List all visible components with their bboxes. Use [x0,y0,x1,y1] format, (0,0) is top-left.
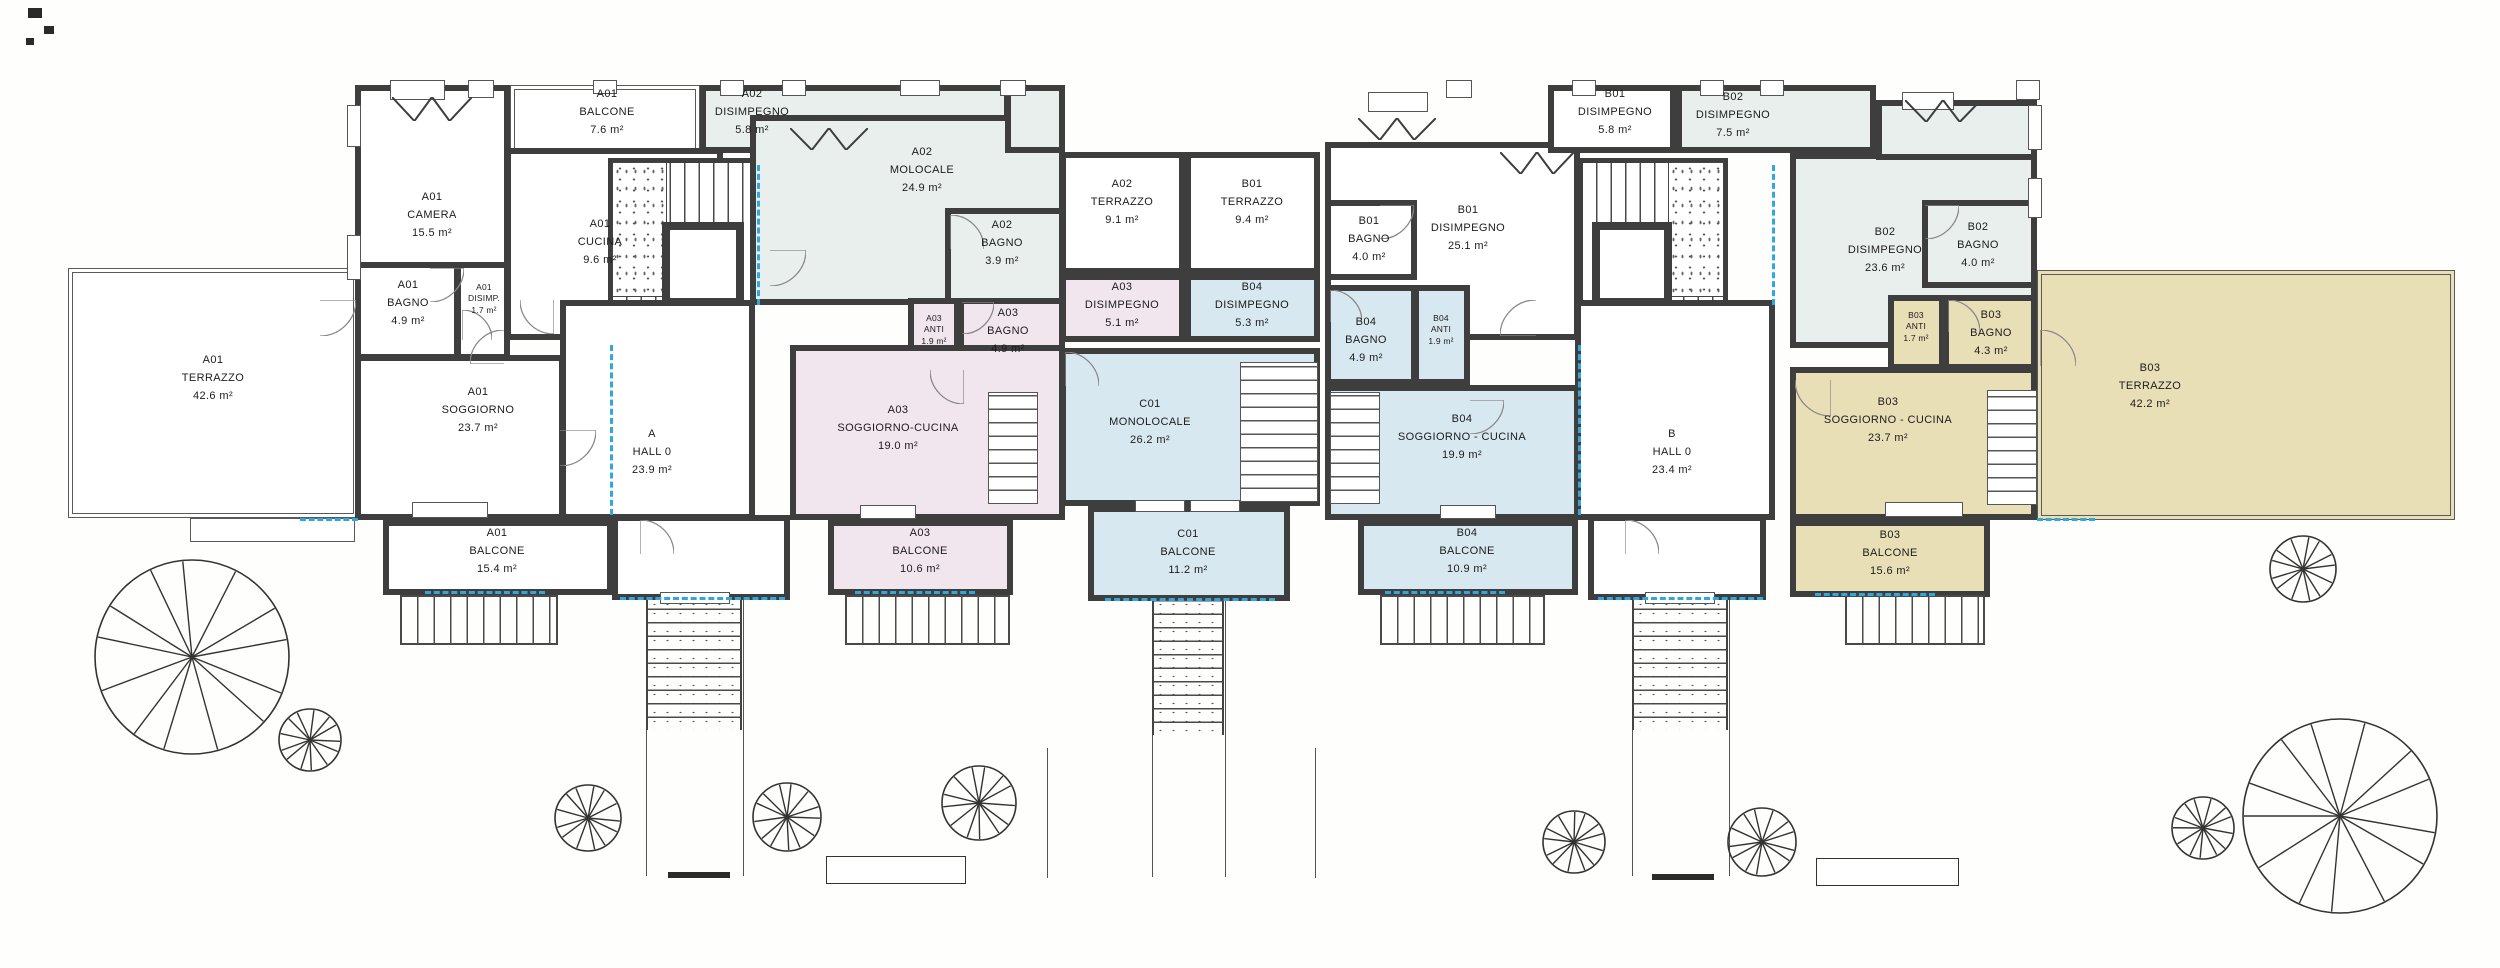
door-arc-icon [950,215,984,249]
room-name: SOGGIORNO [442,401,515,419]
door-arc-icon [1500,300,1536,336]
outdoor-stairs [646,600,742,730]
tree-icon [1542,810,1606,879]
room-name: CUCINA [578,233,623,251]
door-arc-icon [770,250,806,286]
window [412,502,488,518]
room-label: A01BALCONE7.6 m² [579,85,634,139]
room-code: A01 [578,215,623,233]
room-label: AHALL 023.9 m² [632,425,672,479]
room-label: A02DISIMPEGNO5.8 m² [715,85,789,139]
plan-patch [612,515,790,600]
room-name: BALCONE [1439,542,1494,560]
room-name: DISIMPEGNO [1848,241,1922,259]
window [347,105,361,147]
bay-window-icon [1358,118,1436,140]
room-area: 4.3 m² [1970,342,2012,360]
room-name: BALCONE [469,542,524,560]
tree-icon [941,765,1017,846]
room-area: 5.8 m² [1578,121,1652,139]
room-name: DISIMPEGNO [1085,296,1159,314]
room-code: B03 [1970,306,2012,324]
room-name: SOGGIORNO - CUCINA [1824,411,1952,429]
door-arc-icon [470,330,504,364]
room-name: DISIMPEGNO [1215,296,1289,314]
dashed-line [757,165,760,305]
room-label: A01SOGGIORNO23.7 m² [442,383,515,437]
room-label: B03BALCONE15.6 m² [1862,526,1917,580]
window [860,505,916,519]
room-code: A03 [892,524,947,542]
room-name: SOGGIORNO - CUCINA [1398,428,1526,446]
boundary-line [1047,748,1049,878]
room-code: B01 [1578,85,1652,103]
dashed-line [300,518,358,521]
room-name: BAGNO [1957,236,1999,254]
room-area: 42.6 m² [182,387,244,405]
tree-icon [278,708,342,777]
room-label: B01TERRAZZO9.4 m² [1221,175,1283,229]
interior-stairs [1987,390,2037,505]
dashed-line [1385,591,1505,594]
room-name: DISIMPEGNO [1696,106,1770,124]
room-name: BALCONE [579,103,634,121]
room-code: A03 [837,401,958,419]
room-code: A03 [1085,278,1159,296]
room-area: 24.9 m² [890,179,954,197]
room-area: 1.9 m² [1428,336,1453,347]
door-arc-icon [320,300,356,336]
planter [1816,858,1959,886]
room-area: 23.6 m² [1848,259,1922,277]
window [2016,80,2040,100]
room-area: 5.8 m² [715,121,789,139]
plan-patch [1588,515,1766,600]
room-b03-terrazzo [2037,270,2455,520]
room-label: B04BAGNO4.9 m² [1345,313,1387,367]
room-area: 25.1 m² [1431,237,1505,255]
door-arc-icon [640,520,674,554]
door-arc-icon [1925,205,1959,239]
room-label: B03SOGGIORNO - CUCINA23.7 m² [1824,393,1952,447]
room-code: A01 [387,276,429,294]
room-name: MONOLOCALE [1109,413,1191,431]
balcony-railing [400,595,558,645]
room-code: A01 [579,85,634,103]
interior-stairs [1330,392,1380,504]
room-area: 3.9 m² [981,252,1023,270]
door-arc-icon [1625,520,1659,554]
room-area: 11.2 m² [1160,561,1215,579]
room-code: B01 [1348,212,1390,230]
room-area: 1.7 m² [468,305,500,316]
dashed-line [425,591,545,594]
dashed-line [620,597,785,600]
dashed-line [2037,518,2095,521]
room-area: 15.4 m² [469,560,524,578]
outdoor-stairs [1152,600,1224,735]
room-code: A [632,425,672,443]
room-area: 5.1 m² [1085,314,1159,332]
room-label: B04ANTI1.9 m² [1428,313,1453,347]
window [2028,105,2042,150]
tree-icon [94,559,290,760]
room-area: 5.3 m² [1215,314,1289,332]
room-code: C01 [1109,395,1191,413]
room-label: B02BAGNO4.0 m² [1957,218,1999,272]
window [1885,502,1963,517]
dashed-line [1598,597,1763,600]
room-label: A03BAGNO4.9 m² [987,304,1029,358]
room-code: A03 [987,304,1029,322]
room-a-hall-0 [560,300,755,520]
room-area: 4.9 m² [387,312,429,330]
room-name: ANTI [1428,324,1453,335]
terrace-inner-border [2041,274,2451,516]
door-arc-icon [2040,330,2076,366]
room-name: BAGNO [981,234,1023,252]
room-name: BAGNO [987,322,1029,340]
dashed-line [1578,345,1581,515]
room-area: 19.0 m² [837,437,958,455]
window [1135,500,1185,512]
dashed-line [1772,165,1775,305]
tree-icon [752,782,822,857]
room-label: A03SOGGIORNO-CUCINA19.0 m² [837,401,958,455]
room-code: B02 [1957,218,1999,236]
interior-stairs [988,392,1038,504]
room-area: 4.9 m² [1345,349,1387,367]
dashed-line [1815,593,1935,596]
dashed-line [610,345,613,515]
room-code: A02 [981,216,1023,234]
room-label: B04BALCONE10.9 m² [1439,524,1494,578]
room-label: B04SOGGIORNO - CUCINA19.9 m² [1398,410,1526,464]
balcony-railing [1845,595,1985,645]
room-area: 23.4 m² [1652,461,1692,479]
boundary-line [1315,748,1317,878]
room-code: B [1652,425,1692,443]
room-label: A01TERRAZZO42.6 m² [182,351,244,405]
bay-window-icon [1905,100,1981,122]
plan-patch [190,518,355,542]
room-name: BALCONE [1862,544,1917,562]
room-area: 42.2 m² [2119,395,2181,413]
outdoor-stairs [1632,600,1728,730]
room-code: B02 [1696,88,1770,106]
room-code: B04 [1439,524,1494,542]
room-label: A01CUCINA9.6 m² [578,215,623,269]
tree-icon [2269,535,2337,608]
room-area: 1.9 m² [921,336,946,347]
room-code: B04 [1398,410,1526,428]
room-name: BAGNO [387,294,429,312]
room-label: C01BALCONE11.2 m² [1160,525,1215,579]
room-code: B04 [1345,313,1387,331]
bay-window-icon [790,128,868,150]
room-label: B01BAGNO4.0 m² [1348,212,1390,266]
room-area: 10.9 m² [1439,560,1494,578]
stair-landing-speckle [1668,162,1724,297]
room-name: HALL 0 [1652,443,1692,461]
room-code: B01 [1431,201,1505,219]
room-area: 4.9 m² [987,340,1029,358]
window [2028,178,2042,218]
room-name: TERRAZZO [1221,193,1283,211]
room-name: SOGGIORNO-CUCINA [837,419,958,437]
bay-window-icon [392,97,472,121]
balcony-railing [845,595,1010,645]
room-label: A02MOLOCALE24.9 m² [890,143,954,197]
room-code: A02 [890,143,954,161]
room-code: C01 [1160,525,1215,543]
room-label: B04DISIMPEGNO5.3 m² [1215,278,1289,332]
room-name: DISIMPEGNO [1578,103,1652,121]
room-name: DISIMPEGNO [1431,219,1505,237]
room-area: 23.9 m² [632,461,672,479]
room-name: BALCONE [1160,543,1215,561]
room-label: B03ANTI1.7 m² [1903,310,1928,344]
room-name: TERRAZZO [2119,377,2181,395]
room-area: 4.0 m² [1348,248,1390,266]
room-area: 9.1 m² [1091,211,1153,229]
room-label: B03BAGNO4.3 m² [1970,306,2012,360]
room-code: A01 [182,351,244,369]
room-name: ANTI [1903,321,1928,332]
room-label: C01MONOLOCALE26.2 m² [1109,395,1191,449]
room-name: BAGNO [1970,324,2012,342]
room-code: A02 [715,85,789,103]
room-label: A03ANTI1.9 m² [921,313,946,347]
room-label: A01DISIMP.1.7 m² [468,282,500,316]
room-area: 23.7 m² [442,419,515,437]
elevator-shaft [662,222,744,306]
room-label: A03BALCONE10.6 m² [892,524,947,578]
room-label: BHALL 023.4 m² [1652,425,1692,479]
scan-artifact [28,8,42,18]
bay-window-icon [1500,152,1574,174]
room-area: 23.7 m² [1824,429,1952,447]
room-label: A03DISIMPEGNO5.1 m² [1085,278,1159,332]
room-code: B03 [2119,359,2181,377]
room-code: B03 [1824,393,1952,411]
room-area: 9.6 m² [578,251,623,269]
room-code: A01 [407,188,456,206]
room-label: B01DISIMPEGNO5.8 m² [1578,85,1652,139]
room-label: A01BALCONE15.4 m² [469,524,524,578]
room-area: 7.6 m² [579,121,634,139]
room-name: BAGNO [1348,230,1390,248]
dashed-line [1105,598,1275,601]
room-code: A01 [468,282,500,293]
tree-icon [2171,796,2235,865]
room-code: B04 [1215,278,1289,296]
scan-artifact [26,38,34,45]
door-arc-icon [520,300,554,334]
dashed-line [855,591,975,594]
doormat [1652,874,1714,880]
room-code: B04 [1428,313,1453,324]
tree-icon [554,784,622,857]
doormat [668,872,730,878]
room-code: A02 [1091,175,1153,193]
room-name: BALCONE [892,542,947,560]
room-b-hall-0 [1575,300,1775,520]
window [1368,92,1428,112]
door-arc-icon [930,370,964,404]
window [468,80,494,98]
room-area: 9.4 m² [1221,211,1283,229]
window [1190,500,1240,512]
scan-artifact [44,26,54,34]
room-area: 7.5 m² [1696,124,1770,142]
room-area: 26.2 m² [1109,431,1191,449]
door-arc-icon [430,268,464,302]
room-name: DISIMP. [468,293,500,304]
room-area: 10.6 m² [892,560,947,578]
door-arc-icon [560,430,596,466]
room-code: B03 [1903,310,1928,321]
elevator-shaft [1592,222,1672,306]
room-code: A01 [442,383,515,401]
room-label: A02TERRAZZO9.1 m² [1091,175,1153,229]
room-code: B02 [1848,223,1922,241]
window [1446,80,1472,98]
room-area: 4.0 m² [1957,254,1999,272]
room-code: B03 [1862,526,1917,544]
room-name: ANTI [921,324,946,335]
room-area: 19.9 m² [1398,446,1526,464]
room-name: TERRAZZO [1091,193,1153,211]
window [1000,80,1026,96]
tree-icon [2242,718,2438,919]
room-name: TERRAZZO [182,369,244,387]
interior-stairs [1240,362,1318,502]
room-label: B01DISIMPEGNO25.1 m² [1431,201,1505,255]
tree-icon [1727,807,1797,882]
floor-plan: A01TERRAZZO42.6 m²A01CAMERA15.5 m²A01BAL… [0,0,2500,968]
window [900,80,940,96]
door-arc-icon [1065,352,1099,386]
balcony-railing [1380,595,1545,645]
room-a01-soggiorno [355,355,565,520]
room-name: DISIMPEGNO [715,103,789,121]
window [1440,505,1496,519]
room-label: A01CAMERA15.5 m² [407,188,456,242]
room-area: 1.7 m² [1903,333,1928,344]
room-area: 15.5 m² [407,224,456,242]
room-area: 15.6 m² [1862,562,1917,580]
room-label: B02DISIMPEGNO23.6 m² [1848,223,1922,277]
room-name: BAGNO [1345,331,1387,349]
room-name: HALL 0 [632,443,672,461]
room-label: B03TERRAZZO42.2 m² [2119,359,2181,413]
room-code: A03 [921,313,946,324]
room-code: B01 [1221,175,1283,193]
room-name: MOLOCALE [890,161,954,179]
room-label: B02DISIMPEGNO7.5 m² [1696,88,1770,142]
room-label: A01BAGNO4.9 m² [387,276,429,330]
planter [826,856,966,884]
room-label: A02BAGNO3.9 m² [981,216,1023,270]
room-code: A01 [469,524,524,542]
window [347,235,361,280]
room-name: CAMERA [407,206,456,224]
